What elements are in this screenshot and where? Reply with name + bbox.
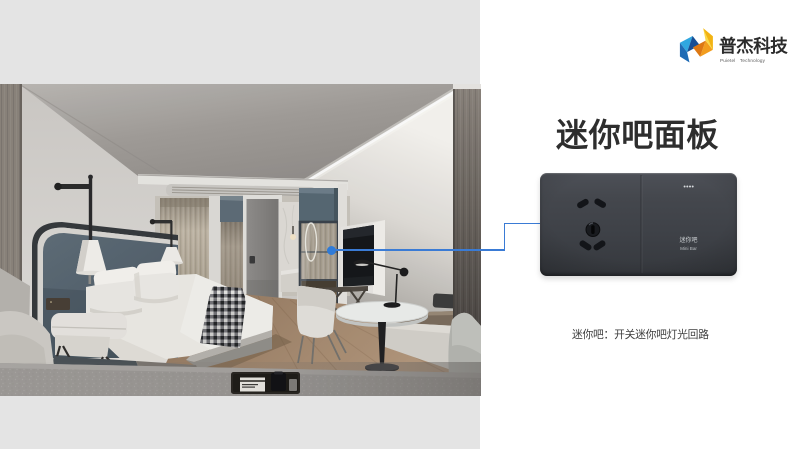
svg-text:Mini Bar: Mini Bar [680,246,697,251]
svg-text:Puietel Technology: Puietel Technology [720,58,766,63]
svg-text:迷你吧: 迷你吧 [679,236,697,244]
svg-text:普杰科技: 普杰科技 [719,36,788,56]
